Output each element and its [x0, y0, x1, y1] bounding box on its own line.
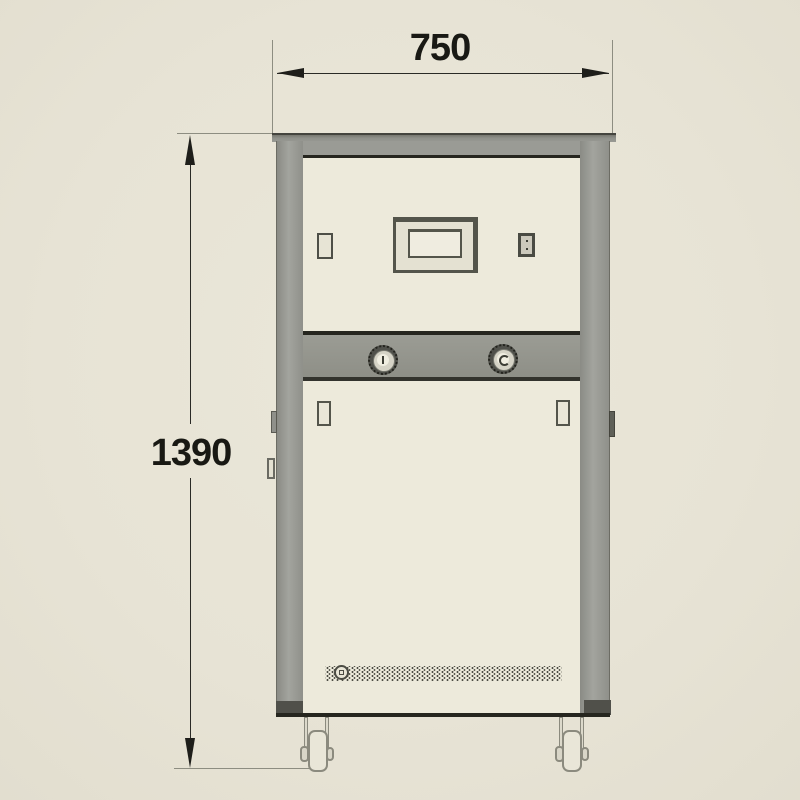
caster-left-wheel — [308, 730, 328, 772]
side-hinge-left-lower — [267, 458, 275, 479]
width-arrow-right-icon — [582, 68, 609, 78]
display-screen[interactable] — [408, 229, 462, 258]
frame-column-left — [276, 141, 303, 713]
height-extension-line-top — [177, 133, 273, 134]
side-vent-slot — [317, 233, 333, 259]
perforated-vent-strip — [325, 666, 562, 681]
side-hinge-left-upper — [271, 411, 277, 433]
height-dimension-label: 1390 — [145, 434, 237, 472]
width-dimension-line — [277, 73, 609, 74]
height-dimension-line-lower — [190, 478, 191, 740]
height-dimension-line-upper — [190, 160, 191, 424]
switch-dot-bottom — [526, 248, 528, 250]
coupling-knob-right[interactable] — [488, 344, 518, 374]
width-dimension-label: 750 — [395, 29, 485, 67]
technical-drawing-canvas: 750 1390 — [0, 0, 800, 800]
coupling-indicator-icon — [499, 355, 510, 366]
side-hinge-right — [609, 411, 615, 437]
power-switch[interactable] — [518, 233, 535, 257]
vent-lock-circle — [334, 665, 349, 680]
frame-column-right — [580, 141, 610, 713]
door-latch-right[interactable] — [556, 400, 570, 426]
switch-dot-top — [526, 240, 528, 242]
caster-right-hub-inner — [581, 747, 589, 761]
width-extension-line-left — [272, 40, 273, 133]
top-rail — [276, 141, 610, 156]
coupling-knob-left[interactable] — [368, 345, 398, 375]
width-extension-line-right — [612, 40, 613, 133]
vent-lock-keyhole-icon — [339, 670, 344, 675]
caster-right-wheel — [562, 730, 582, 772]
width-arrow-left-icon — [277, 68, 304, 78]
height-extension-line-bottom — [174, 768, 311, 769]
lower-front-door — [303, 381, 580, 713]
height-arrow-down-icon — [185, 738, 195, 768]
middle-service-band — [303, 335, 580, 381]
height-arrow-up-icon — [185, 135, 195, 165]
door-latch-left[interactable] — [317, 401, 331, 426]
coupling-indicator-icon — [382, 356, 384, 364]
